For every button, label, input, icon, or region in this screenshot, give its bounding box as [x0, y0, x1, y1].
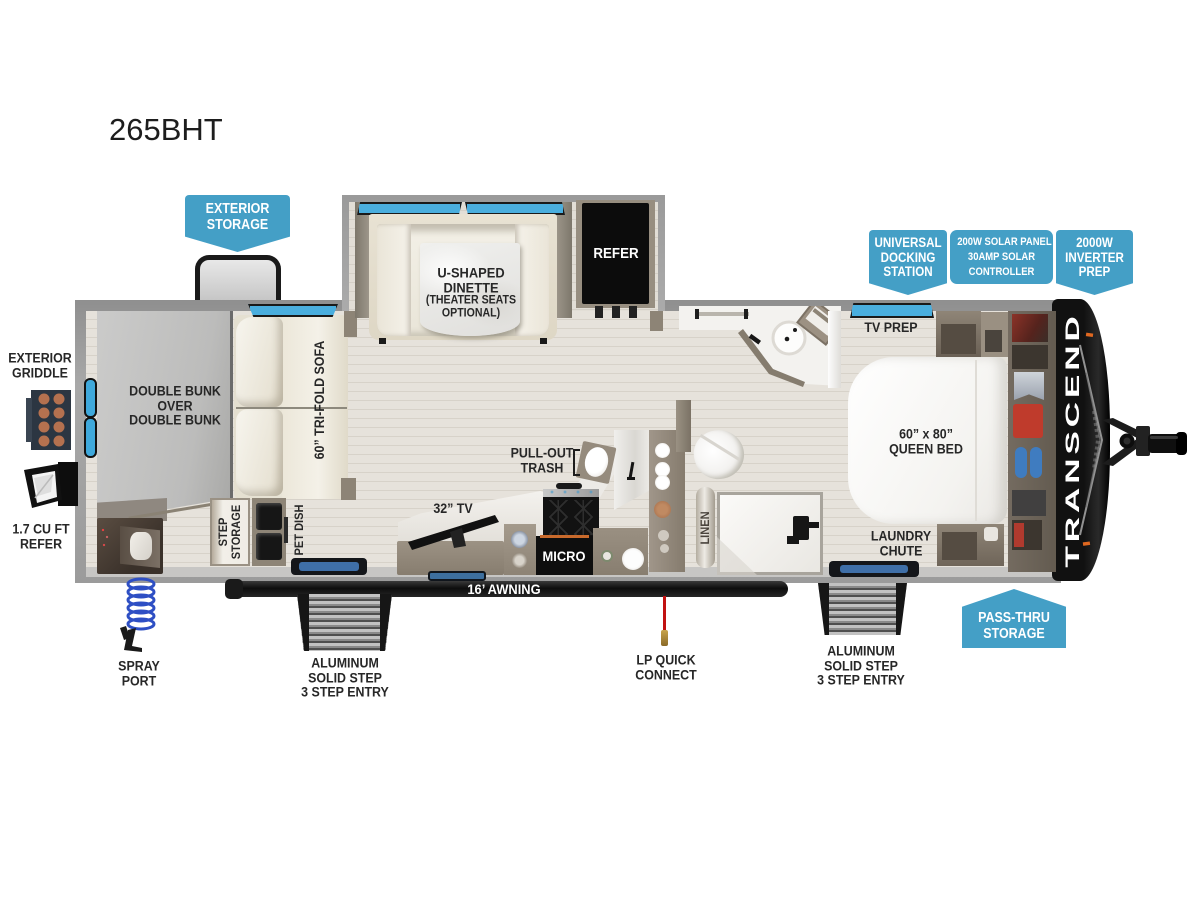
svg-text:TRANSCEND: TRANSCEND — [1062, 312, 1083, 567]
